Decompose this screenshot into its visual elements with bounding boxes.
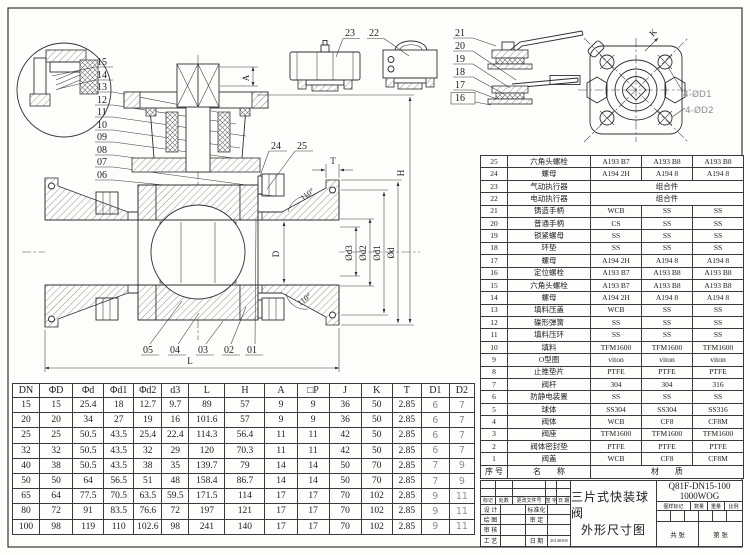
parts-no-cell: 24 bbox=[481, 168, 508, 180]
parts-name-cell: 螺母 bbox=[508, 292, 591, 304]
drawing-sheet: 15 14 13 12 11 10 09 08 07 06 bbox=[0, 0, 750, 555]
parts-row: 14螺母A194 2HA194 8A194 8 bbox=[481, 292, 744, 304]
parts-material-cell: CF8M bbox=[693, 453, 744, 465]
dims-cell: 50 bbox=[361, 398, 392, 413]
parts-row: 15六角头螺栓A193 B7A193 B8A193 B8 bbox=[481, 279, 744, 291]
parts-material-cell: SS bbox=[693, 230, 744, 242]
dims-cell: 32 bbox=[40, 443, 73, 458]
dims-header-row: DN ΦD Φd Φd1 Φd2 d3 L H A □P J K T D1 D2 bbox=[13, 384, 475, 398]
dims-cell: 19 bbox=[134, 413, 162, 428]
parts-material-cell: PTFE bbox=[642, 366, 693, 378]
sig-label bbox=[526, 525, 548, 534]
parts-name-cell: 球体 bbox=[508, 403, 591, 415]
dims-row: 403850.543.53835139.779141450702.8579 bbox=[13, 458, 475, 473]
dims-cell: 38 bbox=[134, 458, 162, 473]
signature-row: 绘 图 审 定 bbox=[481, 515, 570, 525]
dims-cell: 20 bbox=[13, 413, 40, 428]
parts-material-cell: A194 8 bbox=[693, 292, 744, 304]
dims-cell: 17 bbox=[265, 504, 297, 519]
info-header: 比例 bbox=[725, 502, 742, 510]
dims-header: T bbox=[392, 384, 421, 398]
revision-row bbox=[481, 481, 570, 489]
callout-25: 25 bbox=[297, 141, 307, 152]
parts-material-cell: viton bbox=[642, 354, 693, 366]
parts-name-cell: 锁紧螺母 bbox=[508, 230, 591, 242]
dims-cell: 7 bbox=[449, 398, 474, 413]
parts-row: 10填料TFM1600TFM1600TFM1600 bbox=[481, 341, 744, 353]
parts-name-cell: 阀座 bbox=[508, 428, 591, 440]
parts-row: 23气动执行器组合件 bbox=[481, 180, 744, 192]
parts-footer-no: 序 号 bbox=[481, 465, 508, 478]
dims-cell: 2.85 bbox=[392, 473, 421, 488]
dims-cell: 2.85 bbox=[392, 398, 421, 413]
dims-cell: 50 bbox=[329, 473, 361, 488]
sig-label: 日 期 bbox=[526, 536, 548, 546]
parts-name-cell: 六角头螺栓 bbox=[508, 156, 591, 168]
info-blank bbox=[657, 511, 671, 521]
dims-header: K bbox=[361, 384, 392, 398]
dims-cell: 114 bbox=[225, 489, 265, 504]
parts-material-cell: A193 B8 bbox=[642, 279, 693, 291]
dims-cell: 91 bbox=[73, 504, 104, 519]
parts-name-cell: 定位螺栓 bbox=[508, 267, 591, 279]
dims-cell: 2.85 bbox=[392, 489, 421, 504]
dims-cell: 12.7 bbox=[134, 398, 162, 413]
parts-row: 18环垫SSSSSS bbox=[481, 242, 744, 254]
parts-material-cell: SS bbox=[693, 217, 744, 229]
parts-material-cell: A193 B8 bbox=[693, 279, 744, 291]
signature-row: 工 艺 日 期 20140305 bbox=[481, 536, 570, 546]
parts-material-cell: SS bbox=[642, 242, 693, 254]
dims-cell: 25 bbox=[40, 428, 73, 443]
callout-22: 22 bbox=[369, 28, 379, 39]
callout-09: 09 bbox=[97, 132, 107, 143]
callout-20: 20 bbox=[455, 41, 465, 52]
plain-handle-view bbox=[488, 76, 580, 105]
dims-cell: 50.5 bbox=[73, 458, 104, 473]
rev-header: 日 期 bbox=[557, 497, 570, 504]
dims-header: H bbox=[225, 384, 265, 398]
parts-no-cell: 15 bbox=[481, 279, 508, 291]
cast-handle-view bbox=[488, 31, 583, 69]
parts-material-span-cell: 组合件 bbox=[591, 193, 744, 205]
dims-cell: 14 bbox=[297, 473, 329, 488]
dims-cell: 7 bbox=[449, 413, 474, 428]
parts-name-cell: 碟形弹簧 bbox=[508, 317, 591, 329]
parts-no-cell: 1 bbox=[481, 453, 508, 465]
revision-row bbox=[481, 489, 570, 497]
parts-row: 7阀杆304304316 bbox=[481, 379, 744, 391]
dims-cell: 17 bbox=[265, 489, 297, 504]
dims-cell: 76.6 bbox=[134, 504, 162, 519]
signature-row: 审 核 bbox=[481, 525, 570, 535]
dims-cell: 25.4 bbox=[134, 428, 162, 443]
callout-11: 11 bbox=[97, 107, 107, 118]
parts-no-cell: 9 bbox=[481, 354, 508, 366]
dims-cell: 197 bbox=[189, 504, 225, 519]
info-header: 图样标记 bbox=[657, 502, 691, 510]
parts-material-cell: CS bbox=[591, 217, 642, 229]
dims-cell: 7 bbox=[421, 458, 449, 473]
dims-cell: 29 bbox=[162, 443, 189, 458]
main-section-view bbox=[22, 55, 420, 340]
sig-blank bbox=[501, 525, 526, 534]
dims-header: DN bbox=[13, 384, 40, 398]
parts-material-cell: TFM1600 bbox=[591, 428, 642, 440]
callout-03: 03 bbox=[198, 345, 208, 356]
rev-cell bbox=[513, 481, 547, 488]
parts-material-cell: SS bbox=[642, 317, 693, 329]
dim-A-label: A bbox=[241, 74, 251, 81]
callout-16: 16 bbox=[455, 93, 465, 104]
parts-name-cell: O型圈 bbox=[508, 354, 591, 366]
dim-phi-d-label: Ød bbox=[386, 247, 396, 258]
dims-header: J bbox=[329, 384, 361, 398]
parts-material-cell: SS bbox=[693, 391, 744, 403]
parts-material-cell: viton bbox=[591, 354, 642, 366]
callout-14: 14 bbox=[97, 70, 107, 81]
parts-material-cell: PTFE bbox=[591, 440, 642, 452]
dims-cell: 36 bbox=[329, 398, 361, 413]
dims-cell: 98 bbox=[40, 519, 73, 534]
dims-row: 151525.41812.79.789579936502.8567 bbox=[13, 398, 475, 413]
parts-name-cell: 铸造手柄 bbox=[508, 205, 591, 217]
parts-material-cell: PTFE bbox=[591, 366, 642, 378]
parts-material-cell: PTFE bbox=[693, 366, 744, 378]
dims-cell: 32 bbox=[134, 443, 162, 458]
parts-material-cell: SS bbox=[642, 391, 693, 403]
parts-no-cell: 25 bbox=[481, 156, 508, 168]
parts-no-cell: 12 bbox=[481, 317, 508, 329]
dims-header: d3 bbox=[162, 384, 189, 398]
callout-15: 15 bbox=[97, 57, 107, 68]
valve-model: Q81F-DN15-100 bbox=[669, 481, 731, 491]
dims-cell: 9 bbox=[297, 413, 329, 428]
parts-material-cell: TFM1600 bbox=[642, 341, 693, 353]
parts-name-cell: 止推垫片 bbox=[508, 366, 591, 378]
parts-material-cell: A194 8 bbox=[642, 255, 693, 267]
parts-no-cell: 23 bbox=[481, 180, 508, 192]
parts-material-cell: SS bbox=[693, 329, 744, 341]
sig-label: 工 艺 bbox=[481, 536, 501, 546]
dims-cell: 14 bbox=[265, 458, 297, 473]
dims-cell: 25.4 bbox=[73, 398, 104, 413]
dims-cell: 11 bbox=[297, 428, 329, 443]
parts-row: 22电动执行器组合件 bbox=[481, 193, 744, 205]
dims-cell: 121 bbox=[225, 504, 265, 519]
parts-no-cell: 6 bbox=[481, 391, 508, 403]
callout-10: 10 bbox=[97, 120, 107, 131]
rev-cell bbox=[496, 489, 513, 496]
dims-cell: 50.5 bbox=[73, 443, 104, 458]
dims-cell: 56.5 bbox=[104, 473, 134, 488]
rev-cell bbox=[557, 489, 570, 496]
parts-list-table: 25六角头螺栓A193 B7A193 B8A193 B824螺母A194 2HA… bbox=[480, 155, 744, 479]
parts-row: 8止推垫片PTFEPTFEPTFE bbox=[481, 366, 744, 378]
rev-header: 签 字 bbox=[546, 497, 557, 504]
dims-cell: 102 bbox=[361, 504, 392, 519]
dims-header: A bbox=[265, 384, 297, 398]
dims-cell: 70.5 bbox=[104, 489, 134, 504]
parts-material-cell: SS bbox=[591, 242, 642, 254]
parts-material-cell: 316 bbox=[693, 379, 744, 391]
dims-cell: 6 bbox=[421, 398, 449, 413]
parts-row: 12碟形弹簧SSSSSS bbox=[481, 317, 744, 329]
rev-cell bbox=[481, 489, 496, 496]
dims-cell: 50 bbox=[40, 473, 73, 488]
dims-cell: 2.85 bbox=[392, 428, 421, 443]
info-header-row: 图样标记 数量 重量 比例 bbox=[657, 502, 742, 511]
rev-cell bbox=[481, 481, 496, 488]
parts-row: 6防静电装置SSSSSS bbox=[481, 391, 744, 403]
parts-material-cell: SS304 bbox=[642, 403, 693, 415]
callout-07: 07 bbox=[97, 157, 107, 168]
flange-top-view: K 4-ØD1 4-ØD2 bbox=[578, 26, 714, 142]
dims-cell: 11 bbox=[449, 489, 474, 504]
rev-header: 更改文件号 bbox=[513, 497, 547, 504]
dims-row: 656477.570.563.559.5171.51141717701022.8… bbox=[13, 489, 475, 504]
dims-cell: 38 bbox=[40, 458, 73, 473]
dims-cell: 40 bbox=[13, 458, 40, 473]
parts-material-cell: A193 B7 bbox=[591, 267, 642, 279]
bolt-holes-d2-label: 4-ØD2 bbox=[685, 105, 714, 116]
parts-material-cell: A194 8 bbox=[642, 292, 693, 304]
dims-cell: 72 bbox=[40, 504, 73, 519]
info-blank bbox=[713, 511, 727, 521]
parts-row: 2阀体密封垫PTFEPTFEPTFE bbox=[481, 440, 744, 452]
dims-cell: 17 bbox=[297, 489, 329, 504]
parts-no-cell: 21 bbox=[481, 205, 508, 217]
parts-row: 21铸造手柄WCBSSSS bbox=[481, 205, 744, 217]
parts-material-cell: A194 8 bbox=[693, 168, 744, 180]
parts-name-cell: 阀盖 bbox=[508, 453, 591, 465]
dim-phi-d2-label: Ød2 bbox=[358, 245, 368, 261]
dims-cell: 11 bbox=[265, 428, 297, 443]
parts-footer-name: 名 称 bbox=[508, 465, 591, 478]
parts-material-cell: A193 B8 bbox=[693, 156, 744, 168]
sig-label: 标准化 bbox=[526, 505, 548, 514]
dims-cell: 7 bbox=[449, 443, 474, 458]
drawing-title: 三片式快装球阀 外形尺寸图 bbox=[571, 481, 657, 546]
signature-row: 设 计 标准化 bbox=[481, 505, 570, 515]
dims-cell: 140 bbox=[225, 519, 265, 534]
dims-header: Φd1 bbox=[104, 384, 134, 398]
parts-material-cell: SS bbox=[642, 304, 693, 316]
parts-no-cell: 11 bbox=[481, 329, 508, 341]
parts-row: 9O型圈vitonvitonviton bbox=[481, 354, 744, 366]
dims-header: D1 bbox=[421, 384, 449, 398]
dims-cell: 50 bbox=[361, 443, 392, 458]
info-blank bbox=[727, 511, 742, 521]
parts-material-cell: A194 2H bbox=[591, 168, 642, 180]
parts-material-cell: A194 2H bbox=[591, 255, 642, 267]
parts-material-cell: SS bbox=[591, 329, 642, 341]
parts-no-cell: 22 bbox=[481, 193, 508, 205]
dims-cell: 63.5 bbox=[134, 489, 162, 504]
callout-12: 12 bbox=[97, 95, 107, 106]
parts-name-cell: 阀体 bbox=[508, 416, 591, 428]
dims-cell: 9 bbox=[297, 398, 329, 413]
parts-material-cell: WCB bbox=[591, 205, 642, 217]
dims-cell: 6 bbox=[421, 428, 449, 443]
callout-13: 13 bbox=[97, 82, 107, 93]
dims-cell: 11 bbox=[265, 443, 297, 458]
dims-cell: 22.4 bbox=[162, 428, 189, 443]
sig-blank bbox=[501, 505, 526, 514]
sig-blank bbox=[501, 536, 526, 546]
parts-no-cell: 5 bbox=[481, 403, 508, 415]
parts-material-cell: A193 B8 bbox=[642, 156, 693, 168]
dims-cell: 9 bbox=[265, 413, 297, 428]
rev-header: 处数 bbox=[496, 497, 513, 504]
dims-row: 80729183.576.6721971211717701022.85911 bbox=[13, 504, 475, 519]
parts-material-cell: CF8 bbox=[642, 416, 693, 428]
dims-cell: 56.4 bbox=[225, 428, 265, 443]
bolt-holes-d1-label: 4-ØD1 bbox=[683, 89, 712, 100]
parts-material-cell: SS bbox=[693, 304, 744, 316]
callout-06: 06 bbox=[97, 170, 107, 181]
dims-cell: 64 bbox=[40, 489, 73, 504]
dims-cell: 72 bbox=[162, 504, 189, 519]
dims-cell: 25 bbox=[13, 428, 40, 443]
dims-cell: 35 bbox=[162, 458, 189, 473]
dims-cell: 43.5 bbox=[104, 458, 134, 473]
dims-cell: 6 bbox=[421, 443, 449, 458]
dims-cell: 7 bbox=[421, 473, 449, 488]
parts-material-cell: A193 B7 bbox=[591, 279, 642, 291]
parts-row: 5球体SS304SS304SS316 bbox=[481, 403, 744, 415]
rev-cell bbox=[546, 481, 557, 488]
parts-no-cell: 8 bbox=[481, 366, 508, 378]
parts-name-cell: 电动执行器 bbox=[508, 193, 591, 205]
sig-label: 设 计 bbox=[481, 505, 501, 514]
parts-no-cell: 20 bbox=[481, 217, 508, 229]
dims-cell: 11 bbox=[449, 519, 474, 534]
parts-material-cell: viton bbox=[693, 354, 744, 366]
parts-material-cell: A194 2H bbox=[591, 292, 642, 304]
title-block-signature-area: 标记 处数 更改文件号 签 字 日 期 设 计 标准化 绘 图 审 定 审 核 … bbox=[481, 481, 571, 546]
parts-name-cell: 六角头螺栓 bbox=[508, 279, 591, 291]
dims-cell: 20 bbox=[40, 413, 73, 428]
parts-no-cell: 10 bbox=[481, 341, 508, 353]
info-header: 重量 bbox=[708, 502, 725, 510]
dims-cell: 89 bbox=[189, 398, 225, 413]
dims-cell: 15 bbox=[40, 398, 73, 413]
dims-row: 323250.543.5322912070.3111142502.8567 bbox=[13, 443, 475, 458]
dims-cell: 70 bbox=[329, 504, 361, 519]
dims-cell: 50 bbox=[329, 458, 361, 473]
parts-material-cell: 304 bbox=[591, 379, 642, 391]
sig-label: 审 定 bbox=[526, 515, 548, 524]
callout-04: 04 bbox=[170, 345, 180, 356]
parts-no-cell: 19 bbox=[481, 230, 508, 242]
dims-cell: 9.7 bbox=[162, 398, 189, 413]
rev-cell bbox=[496, 481, 513, 488]
dims-cell: 43.5 bbox=[104, 428, 134, 443]
dims-cell: 14 bbox=[265, 473, 297, 488]
dims-cell: 9 bbox=[421, 519, 449, 534]
parts-material-cell: SS bbox=[591, 391, 642, 403]
parts-name-cell: 阀杆 bbox=[508, 379, 591, 391]
dims-cell: 70 bbox=[361, 458, 392, 473]
parts-material-cell: A193 B8 bbox=[693, 267, 744, 279]
revision-header-row: 标记 处数 更改文件号 签 字 日 期 bbox=[481, 497, 570, 505]
dims-cell: 119 bbox=[73, 519, 104, 534]
parts-material-cell: PTFE bbox=[693, 440, 744, 452]
dims-cell: 50 bbox=[13, 473, 40, 488]
dims-cell: 114.3 bbox=[189, 428, 225, 443]
dims-cell: 32 bbox=[13, 443, 40, 458]
dim-L-label: L bbox=[187, 356, 193, 366]
parts-material-cell: A194 8 bbox=[642, 168, 693, 180]
parts-material-cell: SS bbox=[642, 230, 693, 242]
parts-material-cell: SS bbox=[591, 317, 642, 329]
dims-row: 202034271916101.6579936502.8567 bbox=[13, 413, 475, 428]
dims-cell: 51 bbox=[134, 473, 162, 488]
sig-label: 绘 图 bbox=[481, 515, 501, 524]
dims-cell: 15 bbox=[13, 398, 40, 413]
dims-cell: 79 bbox=[225, 458, 265, 473]
dims-cell: 2.85 bbox=[392, 458, 421, 473]
dim-phi-d1-label: Ød1 bbox=[372, 245, 382, 261]
dims-cell: 65 bbox=[13, 489, 40, 504]
parts-name-cell: 普通手柄 bbox=[508, 217, 591, 229]
parts-name-cell: 螺母 bbox=[508, 255, 591, 267]
parts-material-cell: 304 bbox=[642, 379, 693, 391]
parts-footer-row: 序 号 名 称 材 质 bbox=[481, 465, 744, 478]
title-block: 标记 处数 更改文件号 签 字 日 期 设 计 标准化 绘 图 审 定 审 核 … bbox=[480, 480, 743, 547]
dims-cell: 171.5 bbox=[189, 489, 225, 504]
parts-material-cell: SS bbox=[693, 242, 744, 254]
parts-material-cell: SS bbox=[693, 317, 744, 329]
dims-cell: 86.7 bbox=[225, 473, 265, 488]
parts-material-cell: SS bbox=[642, 217, 693, 229]
rev-cell bbox=[513, 489, 547, 496]
parts-material-cell: TFM1600 bbox=[693, 428, 744, 440]
dims-cell: 70.3 bbox=[225, 443, 265, 458]
parts-no-cell: 3 bbox=[481, 428, 508, 440]
dims-cell: 110 bbox=[104, 519, 134, 534]
callouts-actuators: 23 22 bbox=[336, 28, 409, 57]
dims-row: 252550.543.525.422.4114.356.4111142502.8… bbox=[13, 428, 475, 443]
parts-row: 4阀体WCBCF8CF8M bbox=[481, 416, 744, 428]
callout-01: 01 bbox=[247, 345, 257, 356]
parts-material-cell: PTFE bbox=[642, 440, 693, 452]
dims-cell: 64 bbox=[73, 473, 104, 488]
dims-row: 50506456.55148158.486.7141450702.8579 bbox=[13, 473, 475, 488]
parts-material-cell: SS304 bbox=[591, 403, 642, 415]
dims-cell: 80 bbox=[13, 504, 40, 519]
parts-row: 11填料压环SSSSSS bbox=[481, 329, 744, 341]
dims-cell: 42 bbox=[329, 443, 361, 458]
dims-cell: 42 bbox=[329, 428, 361, 443]
callout-21: 21 bbox=[455, 28, 465, 39]
parts-name-cell: 环垫 bbox=[508, 242, 591, 254]
sheet-total: 共 张 bbox=[657, 522, 699, 546]
info-blank-row bbox=[657, 511, 742, 522]
info-header: 数量 bbox=[691, 502, 708, 510]
parts-name-cell: 气动执行器 bbox=[508, 180, 591, 192]
rev-header: 标记 bbox=[481, 497, 496, 504]
dim-T-label: T bbox=[330, 156, 336, 166]
parts-name-cell: 阀体密封垫 bbox=[508, 440, 591, 452]
sig-blank bbox=[548, 505, 570, 514]
dims-cell: 50.5 bbox=[73, 428, 104, 443]
dims-header: □P bbox=[297, 384, 329, 398]
rev-cell bbox=[557, 481, 570, 488]
parts-name-cell: 螺母 bbox=[508, 168, 591, 180]
dims-cell: 7 bbox=[449, 428, 474, 443]
